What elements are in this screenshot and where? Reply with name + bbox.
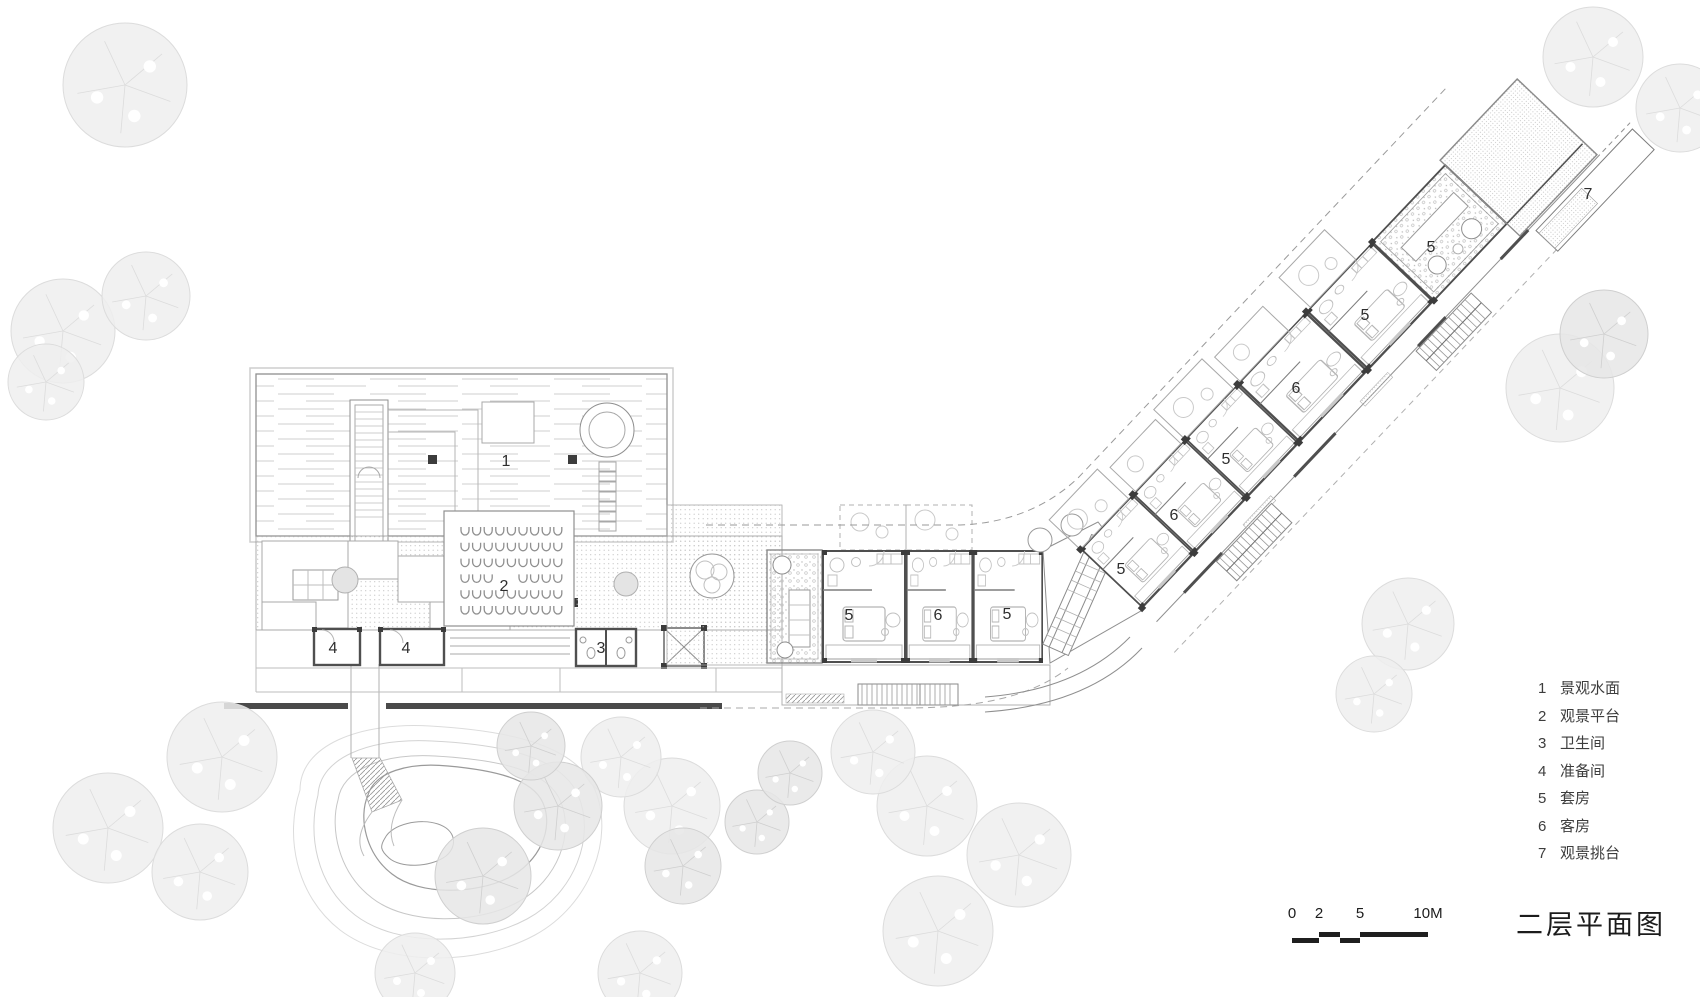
tree	[167, 702, 277, 812]
legend-label: 景观水面	[1560, 680, 1620, 697]
stair-shaft	[350, 400, 388, 547]
room-label-5: 5	[1003, 606, 1012, 623]
legend-number: 5	[1538, 785, 1560, 813]
room-label-6: 6	[1292, 380, 1301, 397]
legend-number: 1	[1538, 675, 1560, 703]
legend-number: 2	[1538, 703, 1560, 731]
scale-label: 5	[1356, 905, 1364, 922]
legend-item-6: 6客房	[1538, 813, 1620, 841]
viewing-platform	[444, 511, 574, 654]
room-label-4: 4	[402, 640, 411, 657]
tree	[53, 773, 163, 883]
legend-label: 卫生间	[1560, 735, 1605, 752]
room-label-5: 5	[1222, 451, 1231, 468]
room-label-7: 7	[1584, 186, 1593, 203]
tree	[758, 741, 822, 805]
room-label-6: 6	[934, 607, 943, 624]
platform-steps	[450, 638, 570, 654]
suite-unit	[822, 550, 906, 663]
legend-item-2: 2观景平台	[1538, 703, 1620, 731]
legend-label: 套房	[1560, 790, 1590, 807]
floor-plan-drawing: 124435655656557	[0, 0, 1700, 997]
tree	[375, 933, 455, 997]
scale-bar: 02510M	[1282, 905, 1452, 955]
scale-label: 0	[1288, 905, 1296, 922]
room-label-5: 5	[1117, 561, 1126, 578]
legend-item-3: 3卫生间	[1538, 730, 1620, 758]
tree	[102, 252, 190, 340]
legend-item-5: 5套房	[1538, 785, 1620, 813]
tree	[435, 828, 531, 924]
room-label-1: 1	[502, 453, 511, 470]
room-label-4: 4	[329, 640, 338, 657]
prep-room-2	[378, 627, 446, 665]
tree	[1543, 7, 1643, 107]
tree	[1636, 64, 1700, 152]
terrace-boxes	[840, 505, 972, 550]
plan-title: 二层平面图	[1516, 903, 1666, 942]
legend: 1景观水面2观景平台3卫生间4准备间5套房6客房7观景挑台	[1538, 675, 1620, 868]
tree	[1336, 656, 1412, 732]
tree	[645, 828, 721, 904]
legend-item-7: 7观景挑台	[1538, 840, 1620, 868]
bathroom	[576, 629, 636, 666]
floor-plan-page: 124435655656557 1景观水面2观景平台3卫生间4准备间5套房6客房…	[0, 0, 1700, 997]
legend-number: 6	[1538, 813, 1560, 841]
tree	[883, 876, 993, 986]
tree	[152, 824, 248, 920]
garden-courtyard	[767, 550, 822, 663]
scale-segment	[1360, 932, 1428, 937]
legend-item-4: 4准备间	[1538, 758, 1620, 786]
room-label-5: 5	[1427, 239, 1436, 256]
garden-path	[351, 664, 402, 856]
legend-label: 观景挑台	[1560, 845, 1620, 862]
site-wall-bar-right	[386, 703, 722, 709]
legend-label: 准备间	[1560, 763, 1605, 780]
room-label-5: 5	[1361, 307, 1370, 324]
scale-segment	[1292, 938, 1319, 943]
legend-label: 客房	[1560, 818, 1590, 835]
tree	[1560, 290, 1648, 378]
tree	[8, 344, 84, 420]
scale-segment	[1340, 938, 1360, 943]
legend-number: 3	[1538, 730, 1560, 758]
boundary-dashed-lower	[700, 668, 1068, 708]
room-label-6: 6	[1170, 507, 1179, 524]
legend-item-1: 1景观水面	[1538, 675, 1620, 703]
scale-label: 10M	[1413, 905, 1442, 922]
scale-segment	[1319, 932, 1340, 937]
tree	[831, 710, 915, 794]
paved-court	[667, 505, 782, 665]
room-label-5: 5	[845, 607, 854, 624]
front-terrace	[782, 665, 1050, 705]
tree	[63, 23, 187, 147]
room-label-3: 3	[597, 640, 606, 657]
tree	[497, 712, 565, 780]
scale-label: 2	[1315, 905, 1323, 922]
tree	[967, 803, 1071, 907]
legend-number: 7	[1538, 840, 1560, 868]
water-deck	[482, 402, 534, 443]
legend-number: 4	[1538, 758, 1560, 786]
tree	[598, 931, 682, 997]
legend-label: 观景平台	[1560, 708, 1620, 725]
room-label-2: 2	[500, 578, 509, 595]
